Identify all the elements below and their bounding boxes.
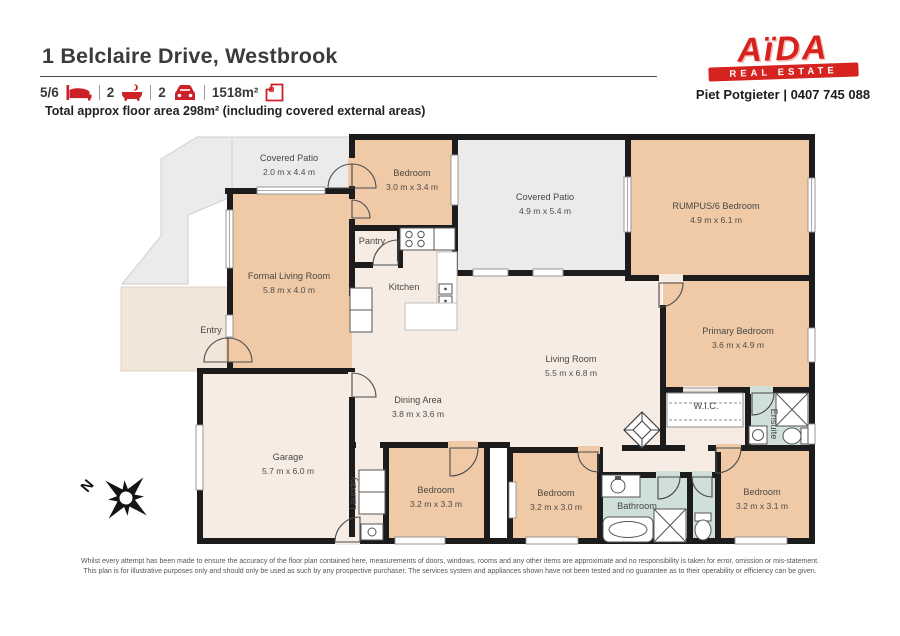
disclaimer: Whilst every attempt has been made to en…: [60, 557, 840, 576]
room-label: Primary Bedroom: [702, 326, 774, 336]
stove-icon: [400, 228, 455, 250]
room-dims: 3.2 m x 3.0 m: [530, 502, 582, 512]
vanity: [749, 426, 767, 444]
compass-north-label: N: [78, 476, 98, 495]
room-dims: 5.5 m x 6.8 m: [545, 368, 597, 378]
washer-icon: [359, 470, 385, 540]
kitchen-island: [405, 303, 457, 330]
room-dims: 2.0 m x 4.4 m: [263, 167, 315, 177]
linen-cupboard: [350, 288, 372, 310]
room-label: Laundry: [348, 476, 358, 510]
floorplan-svg: Covered Patio 2.0 m x 4.4 m Bedroom 3.0 …: [0, 0, 900, 636]
room-label: Bedroom: [743, 487, 781, 497]
bathtub-icon: [603, 517, 653, 542]
room-dims: 3.2 m x 3.3 m: [410, 499, 462, 509]
room-label: Covered Patio: [516, 192, 574, 202]
room-dims: 4.9 m x 6.1 m: [690, 215, 742, 225]
room-label: Living Room: [545, 354, 596, 364]
room-label: Pantry: [359, 236, 386, 246]
room-dims: 3.6 m x 4.9 m: [712, 340, 764, 350]
room-label: Formal Living Room: [248, 271, 331, 281]
room-label: Ensuite: [769, 409, 779, 440]
room-dims: 5.8 m x 4.0 m: [263, 285, 315, 295]
toilet-icon: [695, 513, 711, 540]
room-label: RUMPUS/6 Bedroom: [672, 201, 760, 211]
room-dims: 3.2 m x 3.1 m: [736, 501, 788, 511]
room-dims: 5.7 m x 6.0 m: [262, 466, 314, 476]
room-label: Entry: [200, 325, 222, 335]
room-label: Kitchen: [389, 282, 420, 292]
shower-icon: [654, 509, 686, 542]
compass-rose: N: [78, 460, 164, 536]
linen-cupboard: [350, 310, 372, 332]
shower-icon: [776, 393, 808, 426]
room-label: Covered Patio: [260, 153, 318, 163]
toilet-icon: [783, 428, 808, 444]
room-label: Bedroom: [393, 168, 431, 178]
room-label: W.I.C.: [693, 401, 718, 411]
disclaimer-line2: This plan is for illustrative purposes o…: [60, 567, 840, 577]
room-label: Bedroom: [537, 488, 575, 498]
room-label: Dining Area: [394, 395, 442, 405]
covered-patio-large-area: [455, 137, 628, 273]
room-dims: 4.9 m x 5.4 m: [519, 206, 571, 216]
room-label: Garage: [273, 452, 304, 462]
room-label: Bathroom: [617, 501, 657, 511]
room-dims: 3.0 m x 3.4 m: [386, 182, 438, 192]
disclaimer-line1: Whilst every attempt has been made to en…: [60, 557, 840, 567]
room-label: Bedroom: [417, 485, 455, 495]
room-dims: 3.8 m x 3.6 m: [392, 409, 444, 419]
